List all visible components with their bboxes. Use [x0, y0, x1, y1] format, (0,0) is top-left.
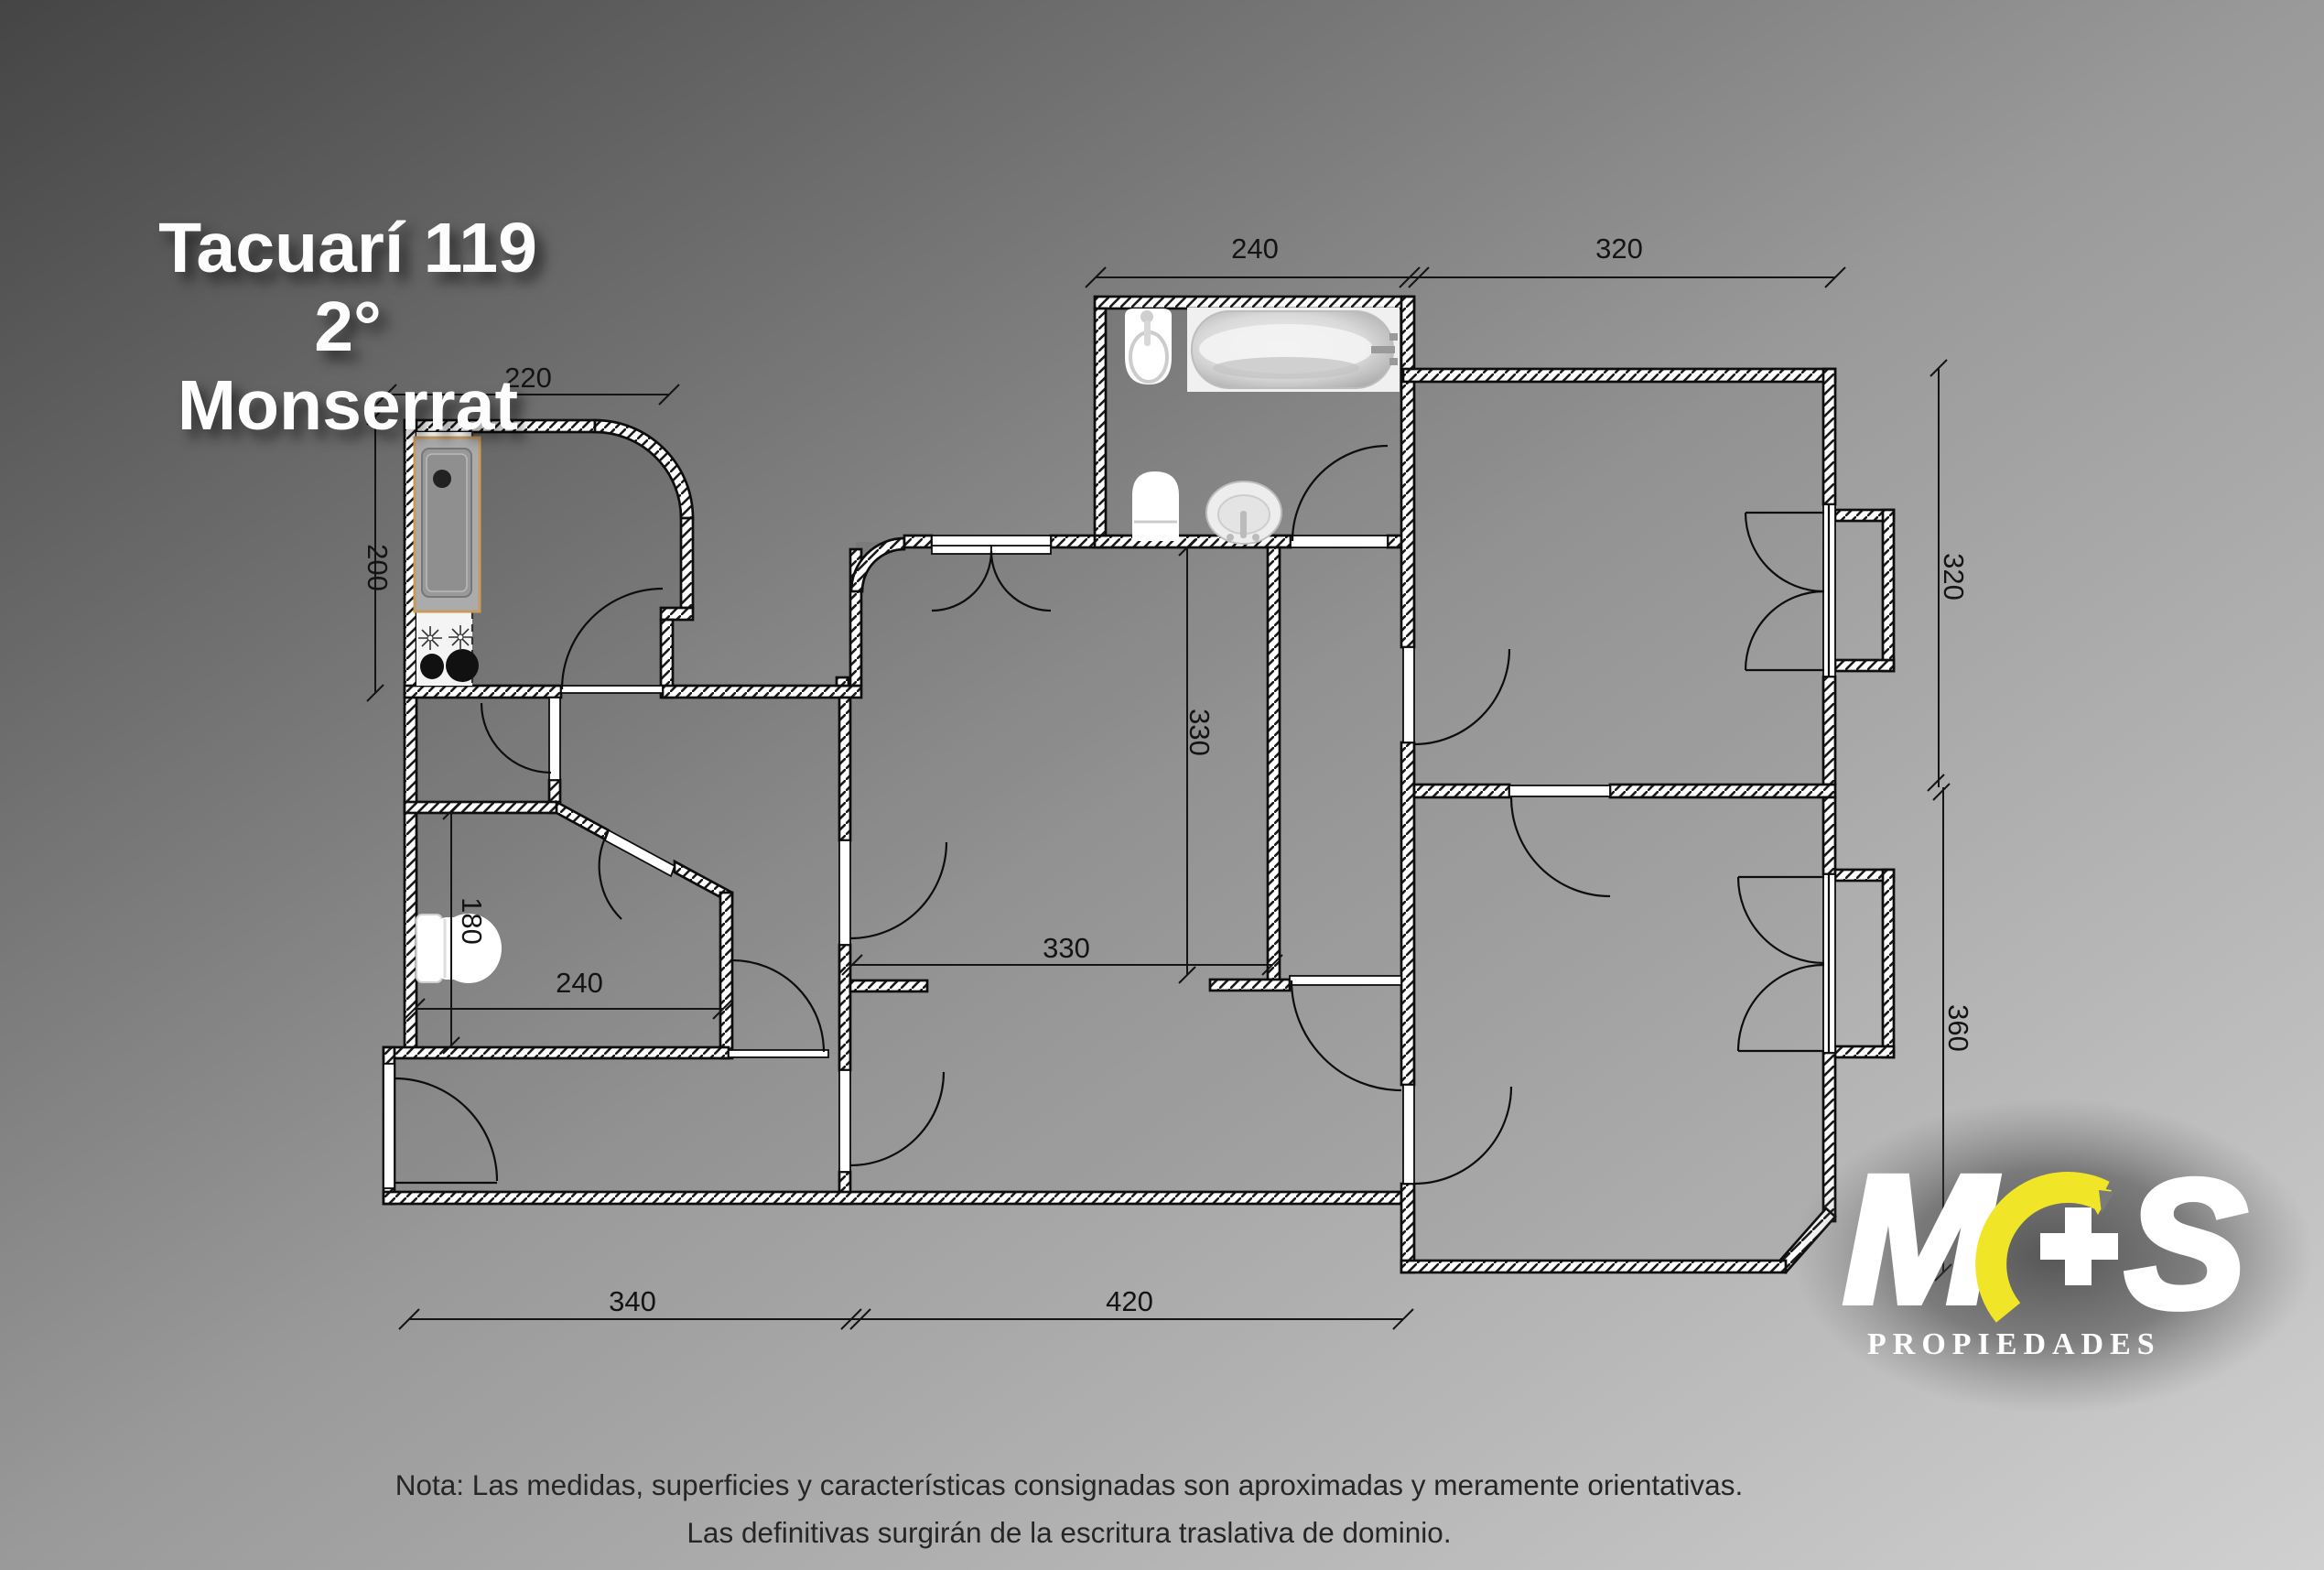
svg-text:320: 320 [1595, 233, 1643, 265]
svg-text:200: 200 [362, 544, 394, 591]
svg-text:360: 360 [1942, 1004, 1974, 1052]
svg-text:M: M [1843, 1138, 1998, 1340]
svg-text:340: 340 [609, 1285, 656, 1317]
svg-text:420: 420 [1106, 1285, 1153, 1317]
svg-text:320: 320 [1938, 553, 1970, 601]
svg-text:S: S [2125, 1142, 2246, 1345]
svg-text:240: 240 [1231, 233, 1279, 265]
svg-text:330: 330 [1184, 709, 1216, 756]
svg-text:330: 330 [1043, 932, 1090, 964]
svg-text:180: 180 [456, 897, 488, 945]
svg-text:240: 240 [556, 967, 603, 999]
